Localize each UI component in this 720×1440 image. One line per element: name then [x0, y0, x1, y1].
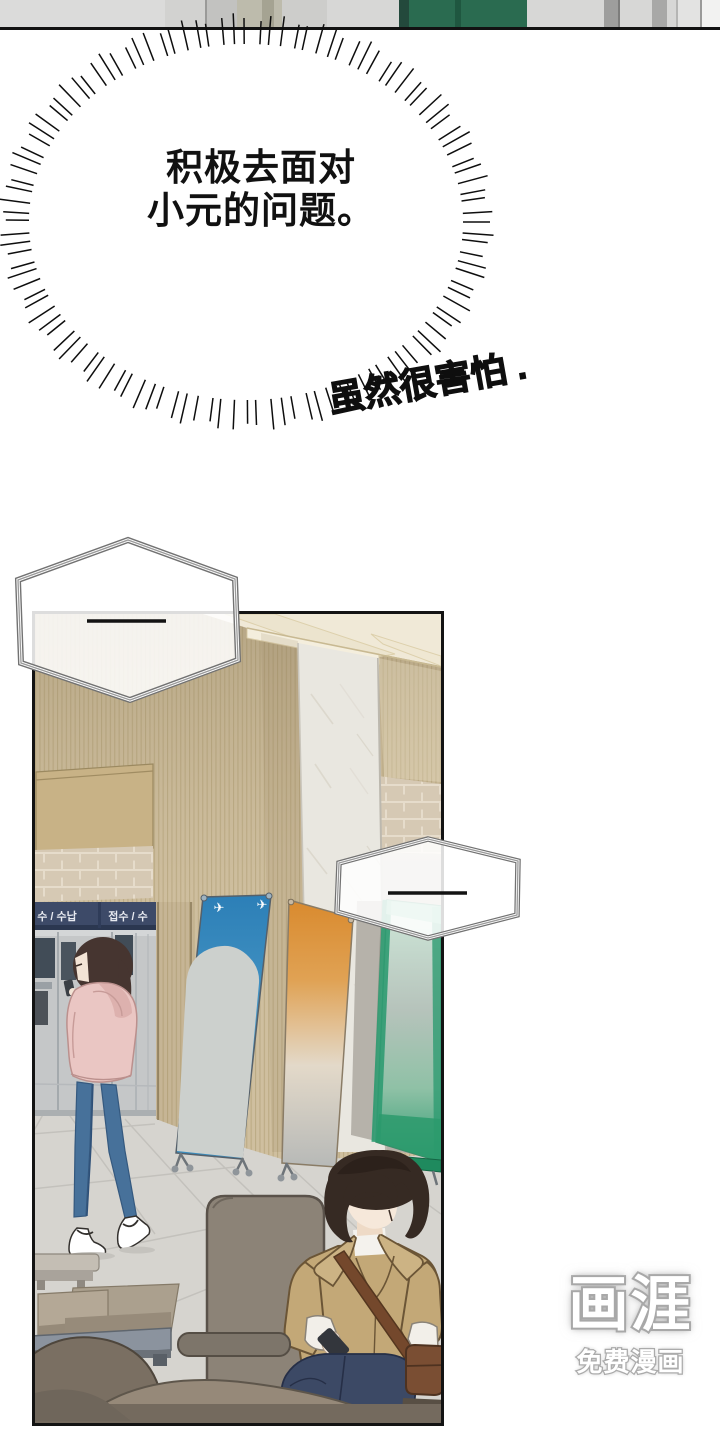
svg-text:✈: ✈ [214, 900, 225, 915]
svg-text:수 / 수납: 수 / 수납 [37, 909, 77, 923]
svg-text:✈: ✈ [257, 897, 268, 912]
svg-text:접수 / 수: 접수 / 수 [108, 910, 148, 923]
